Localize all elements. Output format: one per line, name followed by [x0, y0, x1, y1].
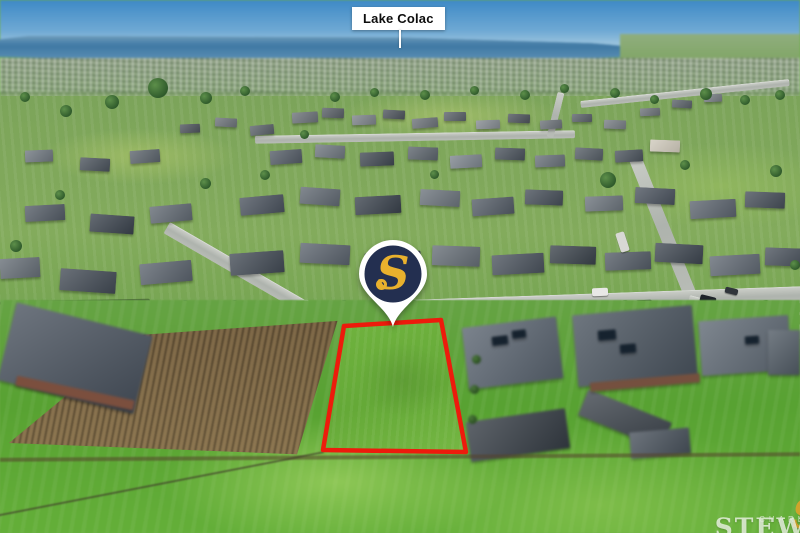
brand-map-pin: S	[355, 239, 431, 329]
garden-bush	[472, 355, 481, 364]
house-roof-foreground	[462, 316, 564, 389]
pin-ring-detail	[376, 279, 387, 290]
house-roof-foreground	[768, 330, 800, 375]
aerial-photo: Lake Colac S S CHARLES STEWART	[0, 0, 800, 533]
lake-colac-pointer-line	[399, 30, 401, 48]
solar-panel	[512, 329, 527, 339]
lake-colac-label: Lake Colac	[352, 7, 445, 30]
solar-panel	[745, 336, 760, 345]
pin-monogram: S	[355, 239, 431, 309]
garden-bush	[468, 415, 477, 424]
solar-panel	[492, 335, 509, 346]
solar-panel	[620, 343, 637, 353]
garden-bush	[470, 385, 479, 394]
watermark-line2: STEWART	[715, 515, 800, 533]
solar-panel	[598, 329, 617, 341]
